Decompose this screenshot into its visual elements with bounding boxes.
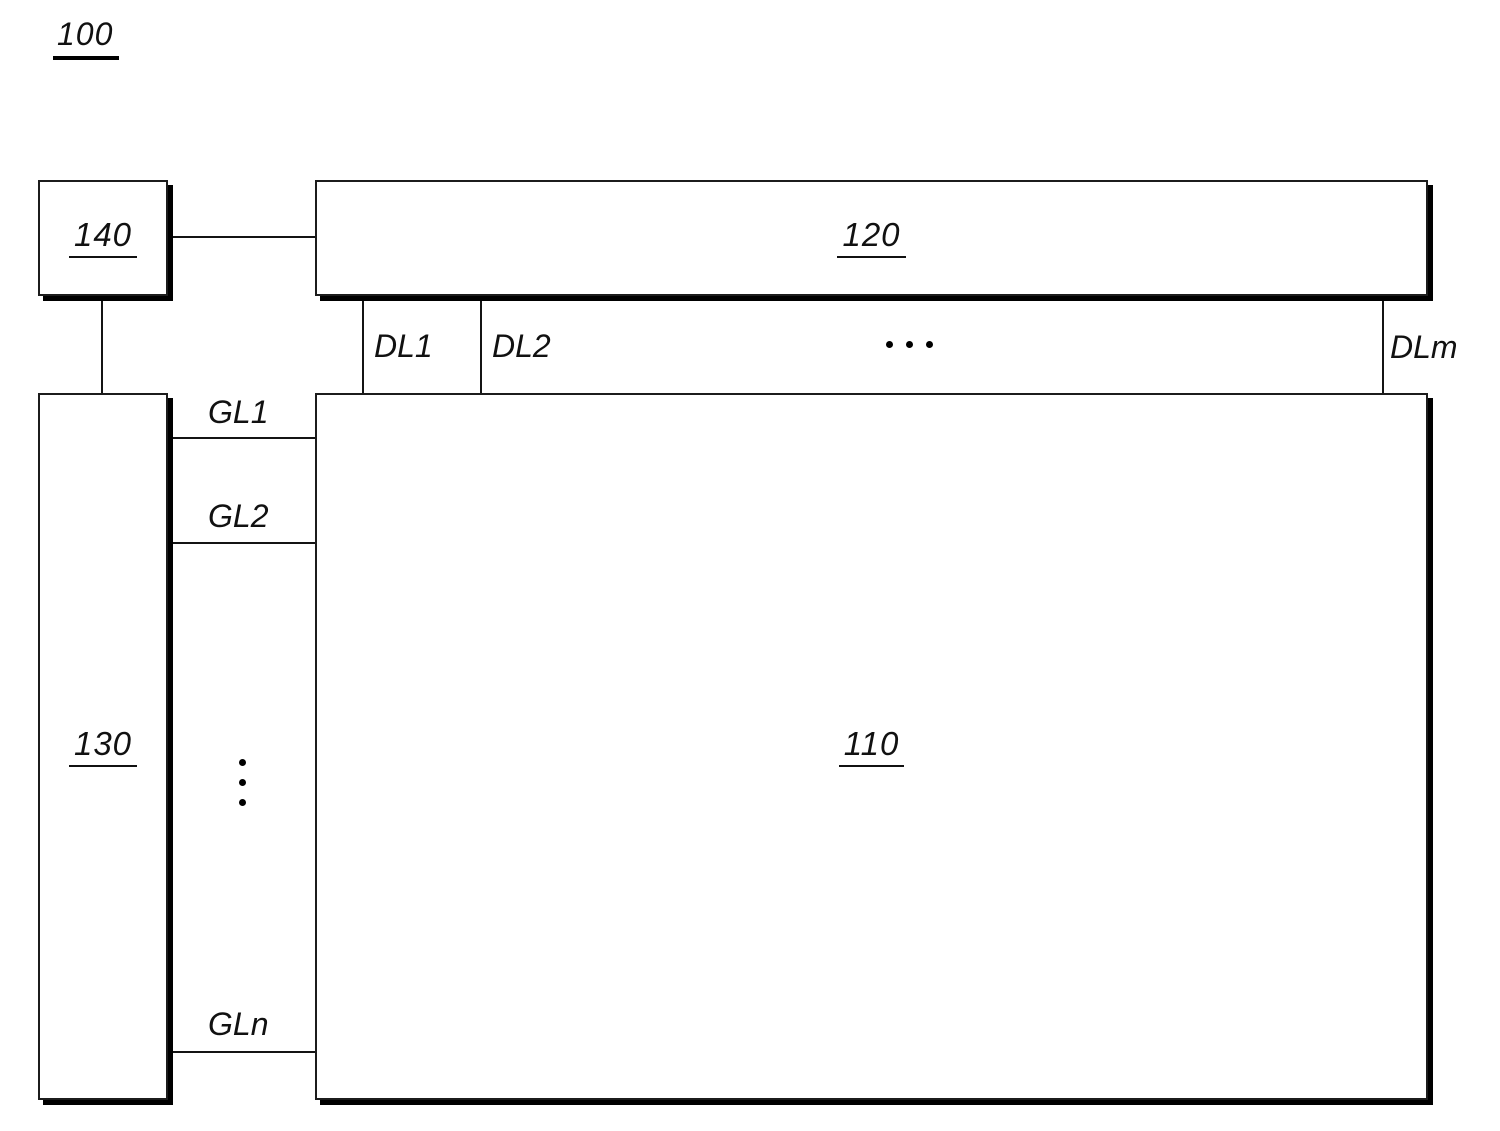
dot: [239, 799, 246, 806]
data-line-dl1-wire: [362, 297, 364, 393]
block-110: 110: [315, 393, 1428, 1100]
block-120: 120: [315, 180, 1428, 296]
gate-line-gl1-label: GL1: [208, 396, 268, 428]
patent-figure-canvas: 100 DL1 DL2 DLm GL1 GL2 GLn 140 120 130: [0, 0, 1500, 1131]
dot: [239, 779, 246, 786]
data-line-dl2-label: DL2: [492, 330, 551, 362]
dot: [906, 341, 913, 348]
ellipsis-horizontal-icon: [886, 341, 933, 348]
gate-line-gl2-label: GL2: [208, 500, 268, 532]
block-140: 140: [38, 180, 168, 296]
gate-line-gl2-wire: [170, 542, 315, 544]
dot: [886, 341, 893, 348]
connector-140-130: [101, 296, 103, 393]
data-line-dl1-label: DL1: [374, 330, 433, 362]
gate-line-gl1-wire: [170, 437, 315, 439]
gate-line-gln-label: GLn: [208, 1008, 268, 1040]
dot: [926, 341, 933, 348]
connector-140-120: [168, 236, 315, 238]
dot: [239, 759, 246, 766]
figure-reference-label: 100: [53, 18, 119, 60]
data-line-dlm-wire: [1382, 297, 1384, 393]
block-140-label: 140: [69, 218, 137, 258]
block-110-label: 110: [839, 727, 905, 767]
ellipsis-vertical-icon: [239, 759, 246, 806]
block-120-label: 120: [837, 218, 905, 258]
data-line-dl2-wire: [480, 297, 482, 393]
data-line-dlm-label: DLm: [1390, 331, 1458, 363]
block-130-label: 130: [69, 727, 137, 767]
gate-line-gln-wire: [170, 1051, 315, 1053]
block-130: 130: [38, 393, 168, 1100]
